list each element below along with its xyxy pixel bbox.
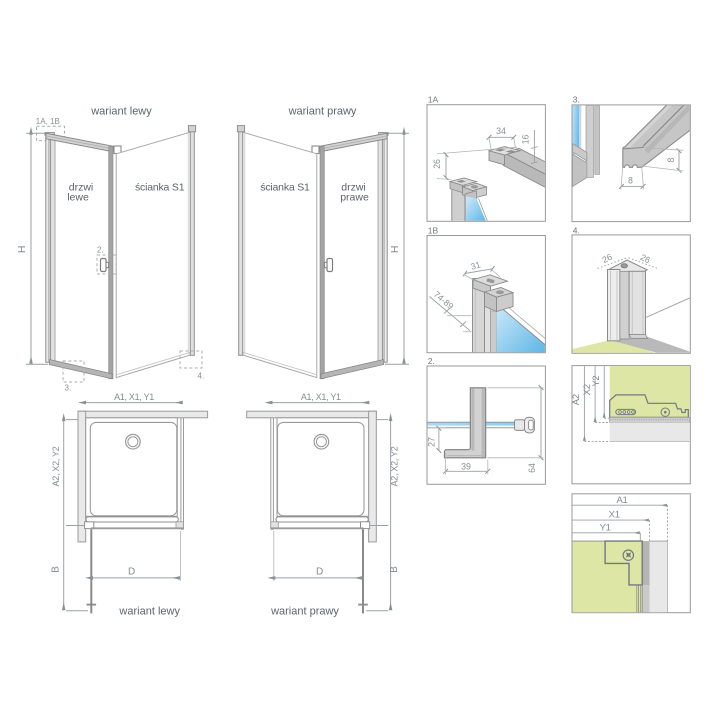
svg-text:ścianka S1: ścianka S1 xyxy=(260,182,310,194)
svg-text:B: B xyxy=(389,566,400,573)
svg-text:A2, X2, Y2: A2, X2, Y2 xyxy=(390,446,400,486)
svg-text:8: 8 xyxy=(628,176,633,186)
svg-text:27: 27 xyxy=(427,437,437,447)
svg-text:2.: 2. xyxy=(97,246,104,255)
svg-text:1B: 1B xyxy=(428,225,439,235)
svg-text:A2: A2 xyxy=(571,394,582,405)
svg-text:Y1: Y1 xyxy=(600,522,611,533)
svg-text:prawe: prawe xyxy=(340,192,369,204)
svg-text:H: H xyxy=(16,246,28,253)
svg-text:wariant lewy: wariant lewy xyxy=(90,106,152,118)
svg-text:16: 16 xyxy=(521,135,531,145)
svg-text:64: 64 xyxy=(527,463,537,473)
svg-text:2.: 2. xyxy=(428,356,435,366)
svg-text:H: H xyxy=(389,246,401,253)
svg-text:A2, X2, Y2: A2, X2, Y2 xyxy=(51,446,61,486)
svg-text:4.: 4. xyxy=(573,225,580,235)
svg-text:D: D xyxy=(316,567,323,578)
svg-text:A1, X1, Y1: A1, X1, Y1 xyxy=(301,392,341,402)
svg-text:wariant prawy: wariant prawy xyxy=(270,605,339,617)
svg-text:1A, 1B: 1A, 1B xyxy=(36,117,60,126)
svg-text:Y2: Y2 xyxy=(591,376,602,387)
svg-text:lewe: lewe xyxy=(67,192,89,204)
svg-text:X1: X1 xyxy=(609,510,620,521)
svg-text:3.: 3. xyxy=(573,95,580,105)
svg-text:1A: 1A xyxy=(428,95,439,105)
svg-text:A1, X1, Y1: A1, X1, Y1 xyxy=(114,392,154,402)
svg-text:3.: 3. xyxy=(65,384,72,393)
svg-text:ścianka S1: ścianka S1 xyxy=(135,182,185,194)
svg-text:wariant lewy: wariant lewy xyxy=(118,605,180,617)
svg-text:D: D xyxy=(128,567,135,578)
svg-text:26: 26 xyxy=(432,159,442,169)
svg-text:A1: A1 xyxy=(616,495,627,506)
svg-text:34: 34 xyxy=(496,126,506,136)
svg-text:39: 39 xyxy=(461,462,471,472)
svg-text:wariant prawy: wariant prawy xyxy=(288,106,357,118)
svg-text:8: 8 xyxy=(666,157,676,162)
svg-text:B: B xyxy=(51,566,62,573)
svg-text:4.: 4. xyxy=(198,372,205,381)
